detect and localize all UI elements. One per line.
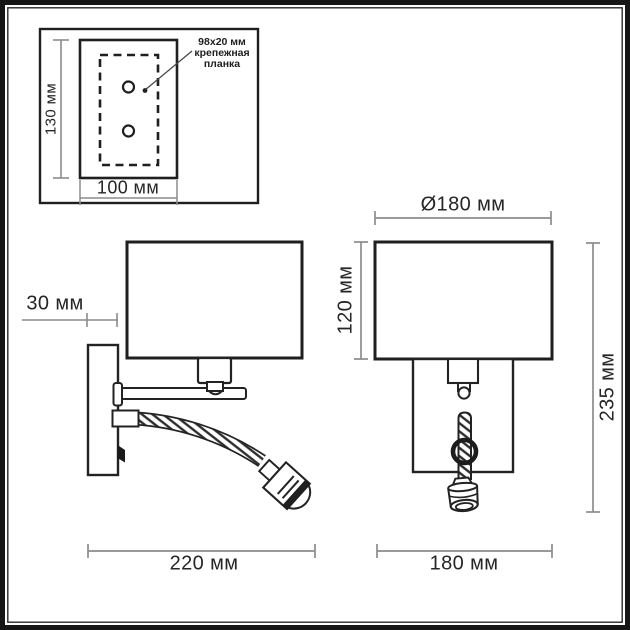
inset-plate-width-label: 100 мм — [97, 178, 159, 199]
leader-dot — [143, 88, 148, 93]
front-shade-diameter-label: Ø180 мм — [421, 194, 506, 217]
arm-wall-flange — [114, 383, 123, 406]
front-total-height-label: 235 мм — [597, 353, 620, 422]
front-switch-knob — [458, 387, 469, 398]
side-wall-offset-label: 30 мм — [26, 293, 83, 316]
front-flex-tube — [459, 413, 472, 480]
side-arm — [114, 383, 247, 406]
mounting-plate — [80, 40, 177, 178]
lamp-dimension-drawing: 98x20 мм крепежная планка 130 мм 100 мм … — [0, 0, 630, 630]
side-shade — [127, 242, 302, 358]
callout-name-label-line2: планка — [184, 59, 260, 70]
front-shade-height-label: 120 мм — [335, 266, 358, 335]
inset-plate-height-label: 130 мм — [43, 83, 60, 135]
mounting-bar-callout: 98x20 мм крепежная планка — [184, 37, 260, 70]
flex-arm-adapter — [113, 411, 139, 427]
front-base-width-label: 180 мм — [430, 553, 499, 576]
mounting-hole-top — [123, 82, 134, 93]
side-depth-label: 220 мм — [170, 553, 239, 576]
side-flex-arm — [113, 411, 263, 462]
head-lens — [456, 502, 474, 510]
front-shade — [375, 242, 552, 359]
front-reading-head — [447, 477, 479, 512]
mounting-hole-bottom — [123, 126, 134, 137]
technical-drawing-canvas — [0, 0, 630, 630]
side-reading-head — [253, 453, 317, 516]
